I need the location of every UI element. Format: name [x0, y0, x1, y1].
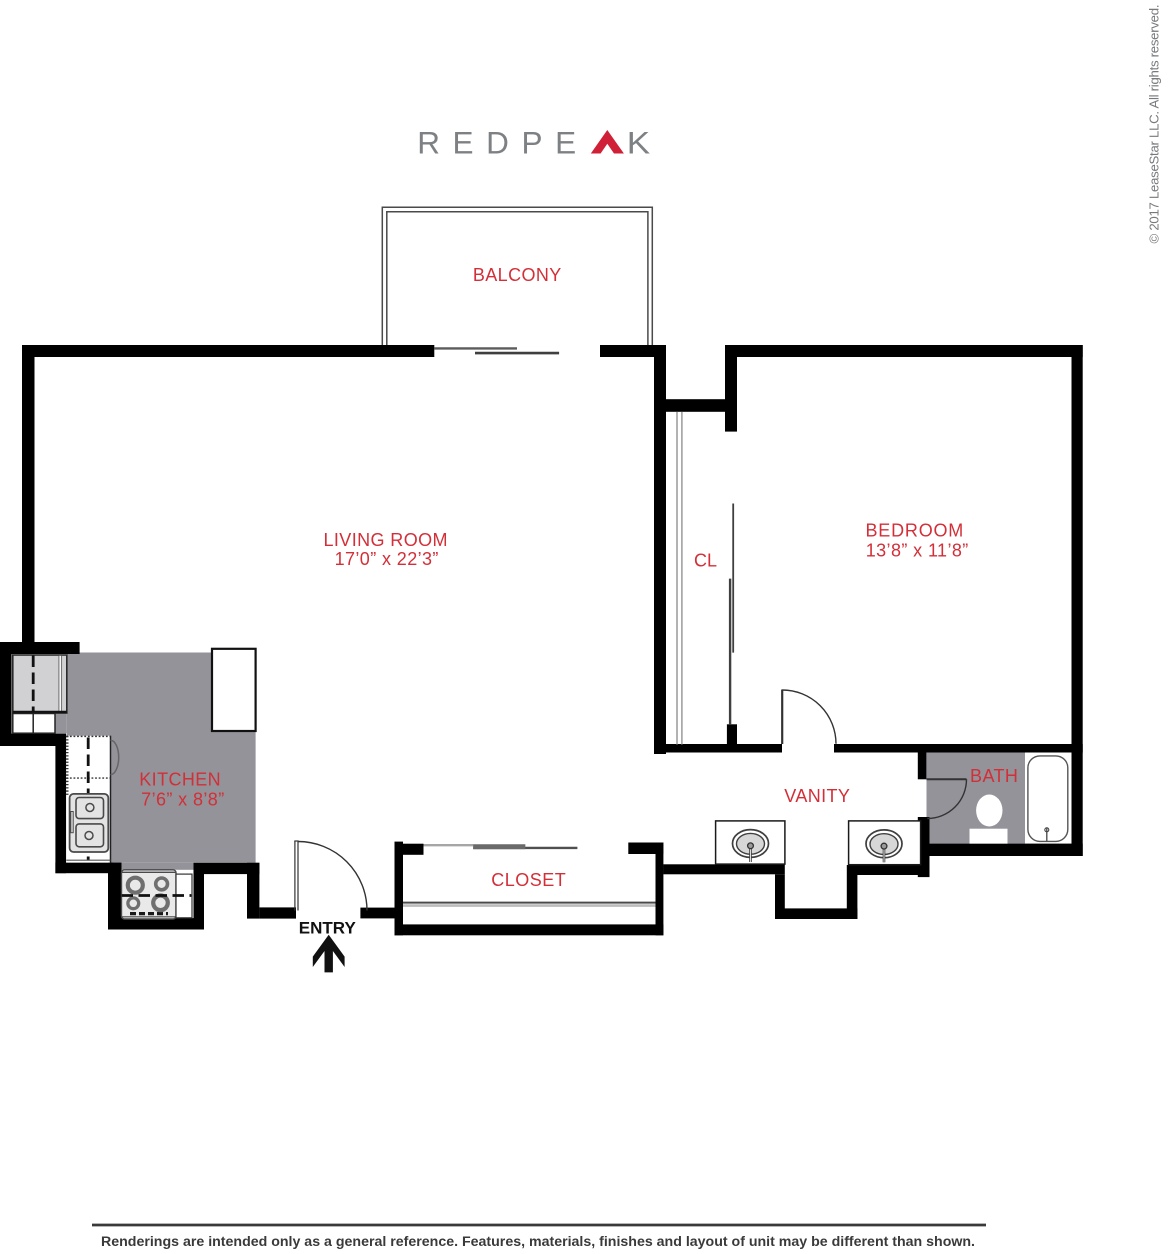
svg-text:13’8” x 11’8”: 13’8” x 11’8” [866, 541, 969, 561]
svg-text:BATH: BATH [970, 766, 1018, 786]
svg-text:7’6” x 8’8”: 7’6” x 8’8” [141, 790, 224, 810]
svg-text:K: K [627, 125, 650, 161]
svg-text:CL: CL [694, 551, 717, 571]
svg-text:KITCHEN: KITCHEN [139, 769, 221, 789]
svg-text:VANITY: VANITY [784, 786, 850, 806]
svg-text:© 2017 LeaseStar LLC. All righ: © 2017 LeaseStar LLC. All rights reserve… [1147, 5, 1162, 244]
svg-text:BALCONY: BALCONY [473, 265, 562, 285]
svg-text:17’0” x 22’3”: 17’0” x 22’3” [335, 549, 439, 569]
svg-text:LIVING ROOM: LIVING ROOM [323, 530, 447, 550]
svg-text:BEDROOM: BEDROOM [865, 521, 964, 541]
svg-text:CLOSET: CLOSET [491, 870, 566, 890]
svg-text:REDPE: REDPE [417, 125, 589, 161]
svg-text:ENTRY: ENTRY [299, 919, 357, 938]
svg-text:Renderings are intended only a: Renderings are intended only as a genera… [101, 1234, 975, 1249]
